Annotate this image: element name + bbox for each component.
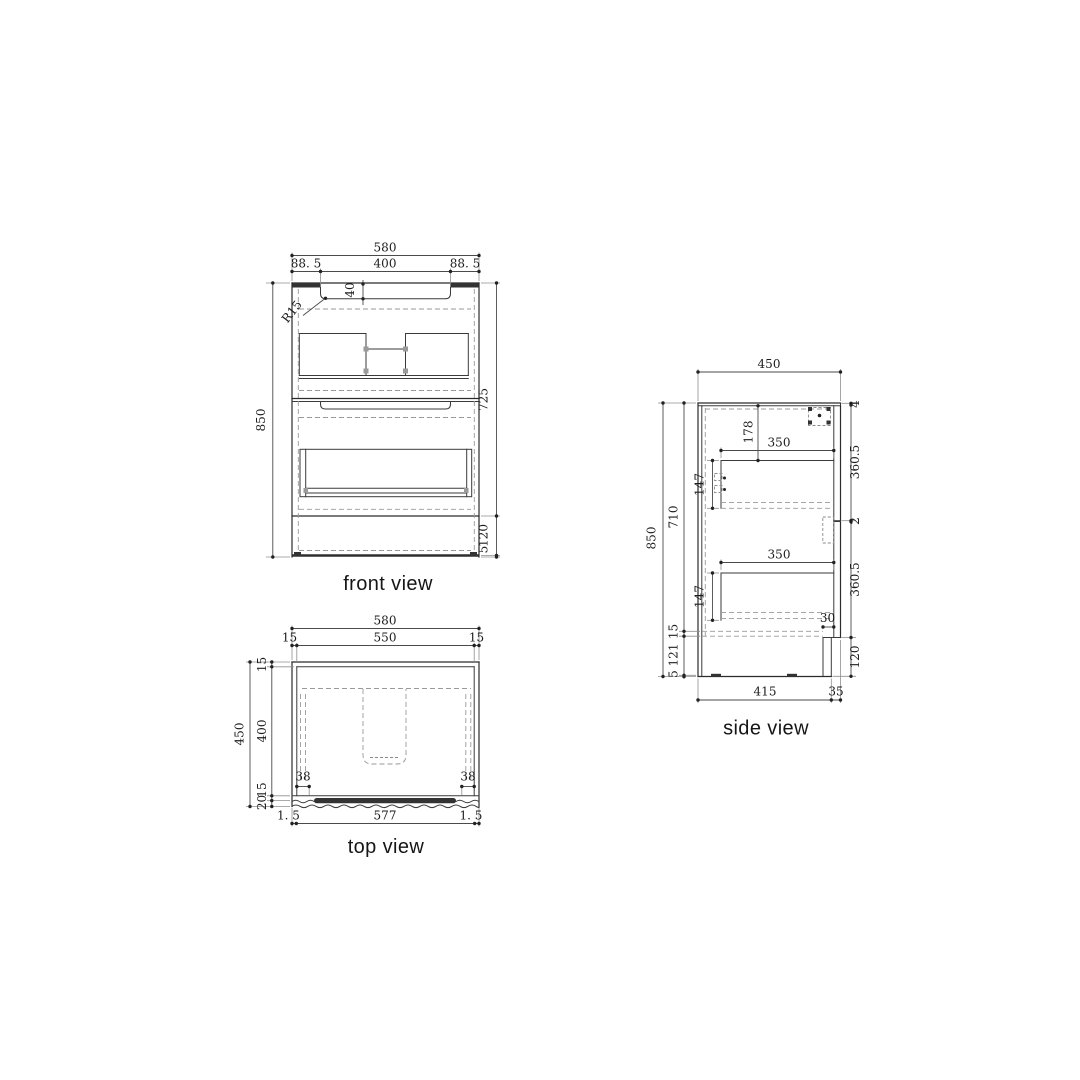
side-dim-plinth-height: 121 [667, 644, 681, 667]
front-dim-recess-width: 400 [374, 257, 397, 271]
side-dim-interior-height: 710 [667, 506, 681, 529]
front-view-interior [299, 334, 471, 497]
front-view-label: front view [343, 573, 433, 595]
side-dim-base-depth: 415 [754, 685, 777, 699]
top-dim-wall-right: 15 [469, 631, 484, 645]
top-dim-hinge-offset-right: 38 [460, 770, 475, 784]
top-view-outline [292, 662, 479, 808]
side-view: 450 850 710 15 121 5 178 [645, 357, 863, 740]
front-view-dimensions: 580 88. 5 400 88. 5 40 R15 850 [254, 241, 500, 559]
front-view: 580 88. 5 400 88. 5 40 R15 850 [254, 241, 500, 596]
side-dim-kick-recess: 30 [820, 611, 835, 625]
top-view-label: top view [348, 836, 425, 858]
side-dim-top-thickness: 4 [848, 400, 862, 408]
side-dim-drawer-front-lower: 360.5 [848, 562, 862, 596]
side-view-label: side view [723, 718, 809, 740]
front-dim-recess-radius: R15 [279, 298, 305, 326]
top-dim-overall-width: 580 [374, 614, 397, 628]
front-dim-recess-offset-left: 88. 5 [291, 257, 322, 271]
runner-clip-detail [715, 474, 727, 493]
top-view-dimensions: 580 15 550 15 450 15 400 [233, 614, 485, 827]
front-dim-recess-offset-right: 88. 5 [450, 257, 481, 271]
top-dim-front-lip: 20 [255, 795, 269, 810]
front-dim-plinth-height: 120 [477, 524, 491, 547]
front-dim-floor-gap: 5 [477, 546, 491, 554]
vanity-cabinet-drawing: 580 88. 5 400 88. 5 40 R15 850 [0, 0, 1080, 1080]
front-dim-body-height: 725 [477, 388, 491, 411]
side-dim-front-gap: 2 [848, 517, 862, 525]
front-view-hidden-lines [298, 289, 474, 551]
side-dim-bottom-panel: 15 [667, 624, 681, 639]
side-dim-drawer-depth-lower: 350 [768, 548, 791, 562]
top-dim-front-gap-left: 1. 5 [277, 809, 300, 823]
side-dim-overall-depth: 450 [758, 357, 781, 371]
top-dim-inner-depth: 400 [255, 720, 269, 743]
front-view-outline [292, 283, 479, 557]
bracket-detail [808, 407, 831, 426]
technical-drawing-page: 580 88. 5 400 88. 5 40 R15 850 [0, 0, 1080, 1080]
top-view: 580 15 550 15 450 15 400 [233, 614, 485, 859]
front-dim-recess-depth: 40 [343, 282, 357, 297]
side-dim-plinth-front: 120 [848, 646, 862, 669]
side-dim-drawer-depth-upper: 350 [768, 436, 791, 450]
top-dim-inner-width: 550 [374, 631, 397, 645]
front-dim-overall-height: 850 [254, 409, 268, 432]
side-dim-drawer-front-upper: 360.5 [848, 445, 862, 479]
top-dim-hinge-offset-left: 38 [295, 770, 310, 784]
top-view-hidden-lines [301, 689, 472, 780]
top-dim-wall-left: 15 [282, 631, 297, 645]
side-dim-overall-height: 850 [645, 527, 659, 550]
side-dim-floor-gap: 5 [667, 670, 681, 678]
side-dim-basin-drop: 178 [742, 421, 756, 444]
top-dim-overall-depth: 450 [233, 723, 247, 746]
side-dim-drawer-height-upper: 147 [693, 473, 707, 496]
top-dim-front-gap-right: 1. 5 [460, 809, 483, 823]
side-dim-drawer-height-lower: 147 [693, 585, 707, 608]
side-dim-front-offset: 35 [828, 685, 843, 699]
top-dim-front-width: 577 [374, 809, 397, 823]
top-dim-wall-back: 15 [255, 657, 269, 672]
front-dim-overall-width: 580 [374, 241, 397, 255]
